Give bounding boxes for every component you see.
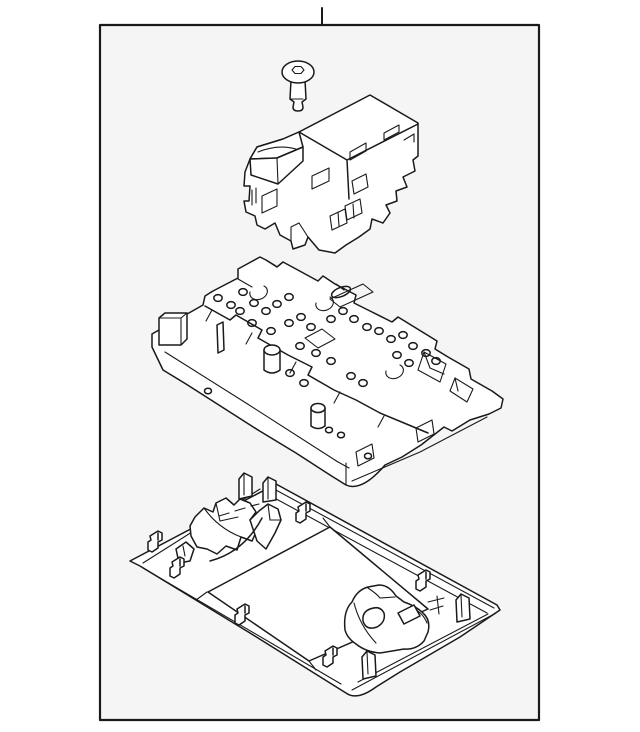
screw-head [282, 61, 314, 83]
diagram-stage [0, 0, 640, 732]
screw-shank [290, 80, 306, 111]
housing-post-right [456, 594, 470, 622]
housing-post-bottom [362, 651, 376, 679]
assembly-boss2-top [311, 404, 325, 413]
assembly-boss1-top [264, 345, 280, 355]
housing-tab-2 [263, 477, 276, 502]
parts-diagram [0, 0, 640, 732]
housing-tab-1 [239, 473, 252, 499]
assembly-post [217, 322, 224, 353]
